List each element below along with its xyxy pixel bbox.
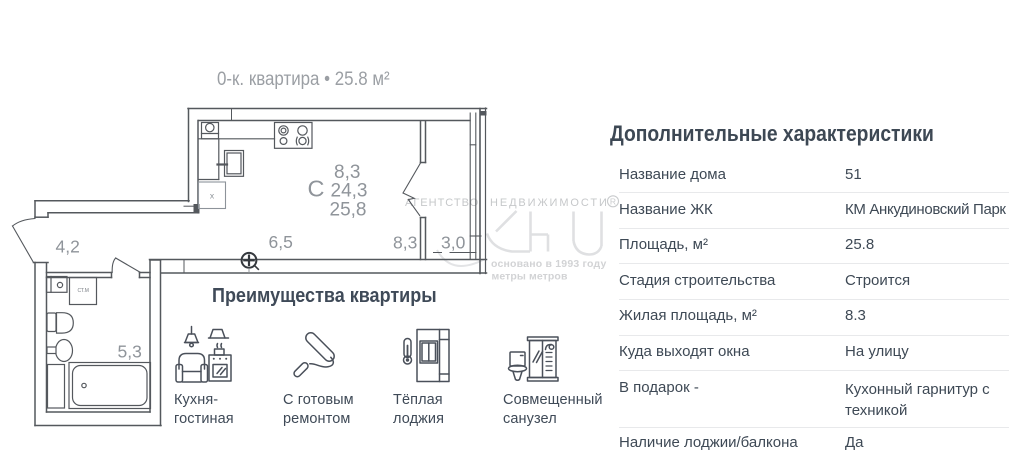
svg-text:метры метров: метры метров [492,270,568,282]
svg-text:основано в 1993 году: основано в 1993 году [491,258,607,270]
svg-text:8,3: 8,3 [393,233,417,253]
svg-text:СТ.М: СТ.М [77,288,89,294]
svg-text:4,2: 4,2 [56,237,80,257]
svg-text:6,5: 6,5 [269,232,293,252]
svg-text:НЕДВИЖИМОСТИ: НЕДВИЖИМОСТИ [490,197,609,209]
svg-text:АГЕНТСТВО: АГЕНТСТВО [405,197,479,209]
svg-text:25,8: 25,8 [330,200,367,221]
svg-text:5,3: 5,3 [118,342,142,362]
svg-text:3,0: 3,0 [441,233,466,253]
svg-text:С: С [308,176,325,202]
svg-text:R: R [610,197,616,207]
svg-text:24,3: 24,3 [331,181,368,202]
svg-text:x: x [210,191,215,201]
